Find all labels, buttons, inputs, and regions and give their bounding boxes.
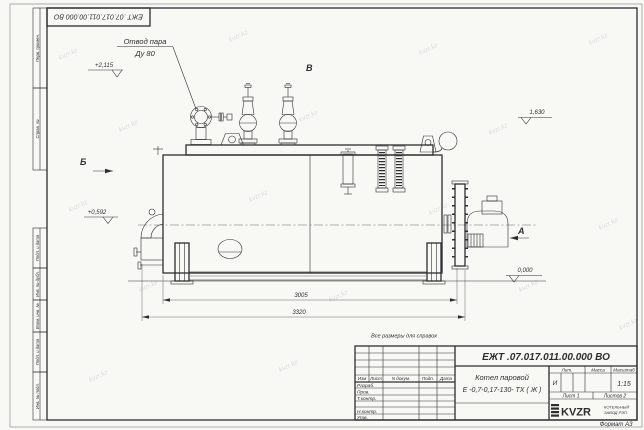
scale-value: 1:15 (617, 381, 631, 388)
margin-label: Перв. примен. (35, 34, 40, 62)
rev-header: Дата (439, 376, 453, 381)
format-label: Формат А3 (600, 422, 633, 428)
watermark-text: kvzr.kz (118, 119, 140, 134)
elev-0592: +0,592 (88, 210, 107, 216)
title-block: Изм Лист N докум. Подп. Дата Разраб. Про… (355, 346, 637, 421)
front-fittings (134, 146, 163, 269)
elev-0000: 0,000 (517, 268, 533, 274)
watermark-text: kvzr.kz (248, 189, 270, 204)
company-name-line1: КОТЕЛЬНЫЙ (604, 405, 629, 410)
product-name-line1: Котел паровой (475, 373, 530, 382)
view-label-v: В (306, 63, 313, 73)
kvzr-logo-text: KVZR (561, 407, 591, 419)
lit-mass-scale: Лит. Масса Масштаб И 1:15 Лист 1 Листов … (549, 366, 637, 400)
blueprint-canvas: kvzr.kz kvzr.kz kvzr.kz kvzr.kz kvzr.kz … (0, 0, 644, 430)
watermark-text: kvzr.kz (228, 29, 250, 44)
lit-value: И (553, 380, 558, 387)
rev-header: Подп. (422, 376, 434, 381)
water-gauge (341, 146, 405, 194)
sign-row-label: Н.контр. (357, 409, 377, 415)
lit-header: Лит. (561, 368, 573, 373)
margin-label: Подп. и дата (35, 338, 40, 365)
sign-row-label: Т.контр. (357, 396, 376, 402)
sign-row-label: Разраб. (357, 383, 374, 389)
view-label-a: А (517, 226, 525, 236)
watermark-layer: kvzr.kz kvzr.kz kvzr.kz kvzr.kz kvzr.kz … (58, 29, 640, 384)
mass-header: Масса (591, 368, 605, 373)
watermark-text: kvzr.kz (588, 32, 610, 47)
margin-label: Инв. № дубл. (35, 271, 40, 297)
safety-valve (239, 84, 257, 146)
elev-2115: +2,115 (95, 63, 114, 69)
margin-stamp-boxes: Перв. примен. Справ. № Подп. и дата Инв.… (33, 8, 47, 420)
company-logo-cell: KVZR КОТЕЛЬНЫЙ ЗАВОД РЭП (551, 404, 629, 419)
rev-header: N докум. (392, 376, 411, 381)
elevation-marks: +2,115 +0,592 1,630 0,000 (84, 63, 552, 282)
callout-line2: Ду 80 (134, 49, 155, 58)
rev-header: Изм (358, 376, 367, 381)
company-name-line2: ЗАВОД РЭП (604, 410, 627, 415)
margin-label: Подп. и дата (35, 234, 40, 261)
watermark-text: kvzr.kz (418, 42, 440, 57)
sheet-number: Лист 1 (561, 394, 579, 400)
watermark-text: kvzr.kz (598, 217, 620, 232)
elev-1630: 1,630 (529, 110, 545, 116)
revision-table: Изм Лист N докум. Подп. Дата Разраб. Про… (355, 346, 455, 421)
sign-row-label: Пров. (357, 390, 370, 396)
boiler-general-view: 3005 3320 +2,115 +0,592 1,630 0,000 Б (80, 37, 552, 321)
watermark-text: kvzr.kz (298, 109, 320, 124)
sheets-total: Листов 2 (603, 394, 627, 400)
margin-label: Справ. № (35, 119, 40, 138)
steam-outlet (191, 107, 233, 145)
callout-line1: Отвод пара (124, 37, 167, 46)
watermark-text: kvzr.kz (88, 369, 110, 384)
watermark-text: kvzr.kz (278, 359, 300, 374)
rev-header: Лист (369, 376, 382, 381)
steam-callout: Отвод пара Ду 80 (117, 37, 196, 109)
flue-outlet (420, 132, 457, 152)
watermark-text: kvzr.kz (428, 202, 450, 217)
watermark-text: kvzr.kz (58, 47, 80, 62)
watermark-text: kvzr.kz (488, 122, 510, 137)
reference-note: Все размеры для справок (371, 334, 437, 340)
scale-header: Масштаб (613, 368, 635, 373)
doc-designation: ЕЖТ .07.017.011.00.000 ВО (482, 352, 610, 363)
drawing-sheet: kvzr.kz kvzr.kz kvzr.kz kvzr.kz kvzr.kz … (0, 0, 644, 430)
view-label-b: Б (80, 157, 87, 167)
dim-3005: 3005 (294, 293, 308, 299)
top-designation-box: ЕЖТ .07.017.011.00.000 ВО (47, 8, 150, 26)
product-name-line2: Е -0,7-0,17-130- ТХ ( Ж ) (463, 387, 542, 394)
top-designation-text: ЕЖТ .07.017.011.00.000 ВО (53, 13, 143, 20)
sign-row-label: Утв. (357, 415, 368, 421)
watermark-text: kvzr.kz (68, 199, 90, 214)
view-labels: Б В А (80, 63, 529, 240)
margin-label: Инв. № подл. (35, 383, 40, 409)
dim-3320: 3320 (292, 310, 306, 316)
boiler-supports (171, 243, 445, 284)
margin-label: Взам. инв. № (35, 303, 40, 329)
safety-valve (279, 84, 297, 146)
watermark-text: kvzr.kz (328, 289, 350, 304)
